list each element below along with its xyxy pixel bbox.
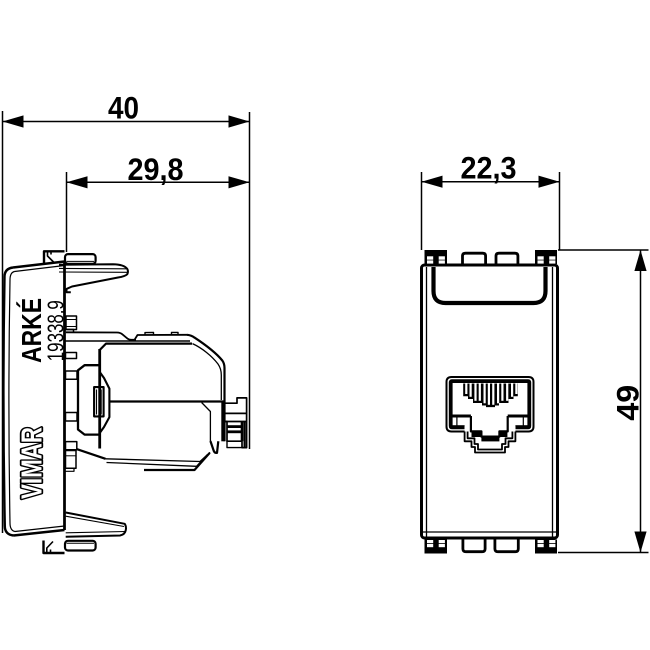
svg-text:40: 40 xyxy=(108,89,139,125)
svg-text:49: 49 xyxy=(610,385,646,421)
svg-text:VIMAR: VIMAR xyxy=(16,427,48,499)
svg-text:29,8: 29,8 xyxy=(128,151,184,187)
svg-text:22,3: 22,3 xyxy=(461,149,517,185)
svg-text:19338.9: 19338.9 xyxy=(42,300,68,361)
